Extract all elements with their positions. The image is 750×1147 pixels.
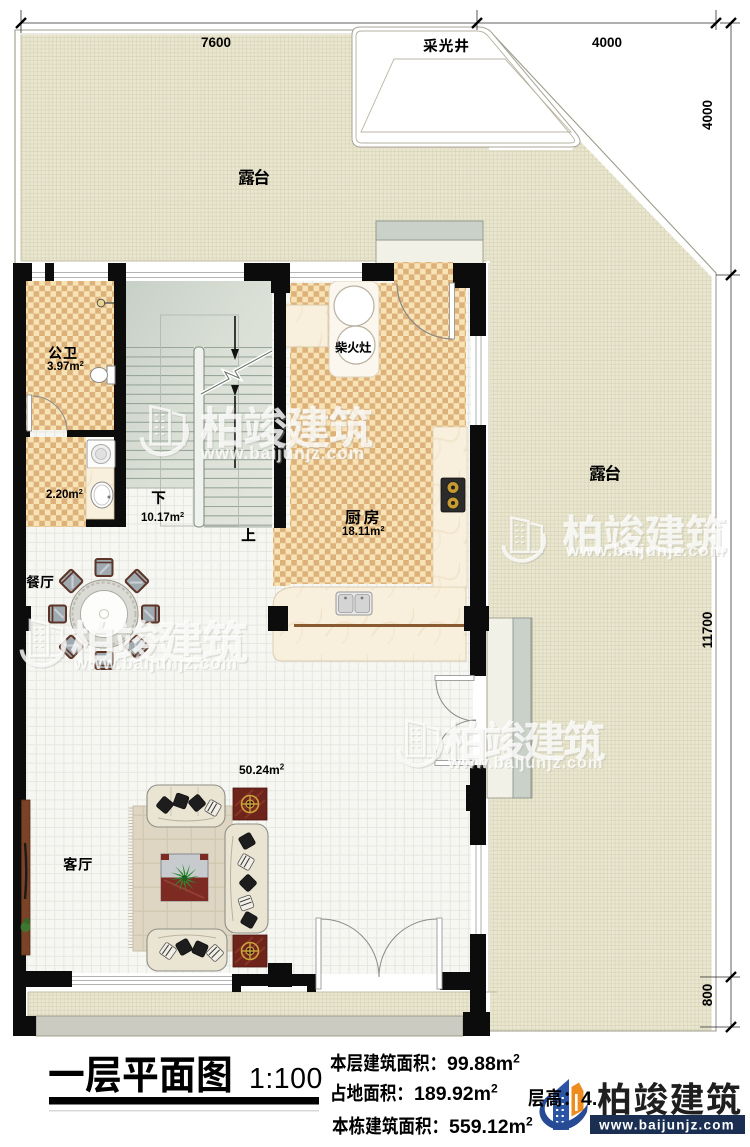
svg-text:4000: 4000 bbox=[592, 35, 622, 50]
svg-text:10.17m2: 10.17m2 bbox=[141, 510, 184, 524]
svg-text:www.baijunjz.com: www.baijunjz.com bbox=[447, 754, 603, 772]
svg-text:www.baijunjz.com: www.baijunjz.com bbox=[73, 653, 238, 673]
svg-text:800: 800 bbox=[700, 984, 715, 1007]
svg-text:3.97m2: 3.97m2 bbox=[47, 359, 84, 373]
svg-text:18.11m2: 18.11m2 bbox=[342, 524, 385, 538]
svg-text:www.baijunjz.com: www.baijunjz.com bbox=[565, 541, 726, 560]
svg-text:1:100: 1:100 bbox=[249, 1063, 323, 1095]
svg-text:www.baijunjz.com: www.baijunjz.com bbox=[598, 1118, 735, 1133]
svg-text:189.92m2: 189.92m2 bbox=[414, 1082, 498, 1105]
svg-text:4000: 4000 bbox=[700, 100, 715, 130]
svg-text:11700: 11700 bbox=[700, 612, 715, 649]
svg-text:7600: 7600 bbox=[201, 35, 231, 50]
svg-text:559.12m2: 559.12m2 bbox=[449, 1115, 533, 1138]
svg-text:4.: 4. bbox=[581, 1088, 597, 1110]
svg-text:2.20m2: 2.20m2 bbox=[46, 487, 83, 501]
svg-text:99.88m2: 99.88m2 bbox=[447, 1052, 520, 1075]
svg-text:www.baijunjz.com: www.baijunjz.com bbox=[200, 443, 365, 463]
svg-text:50.24m2: 50.24m2 bbox=[239, 763, 285, 778]
